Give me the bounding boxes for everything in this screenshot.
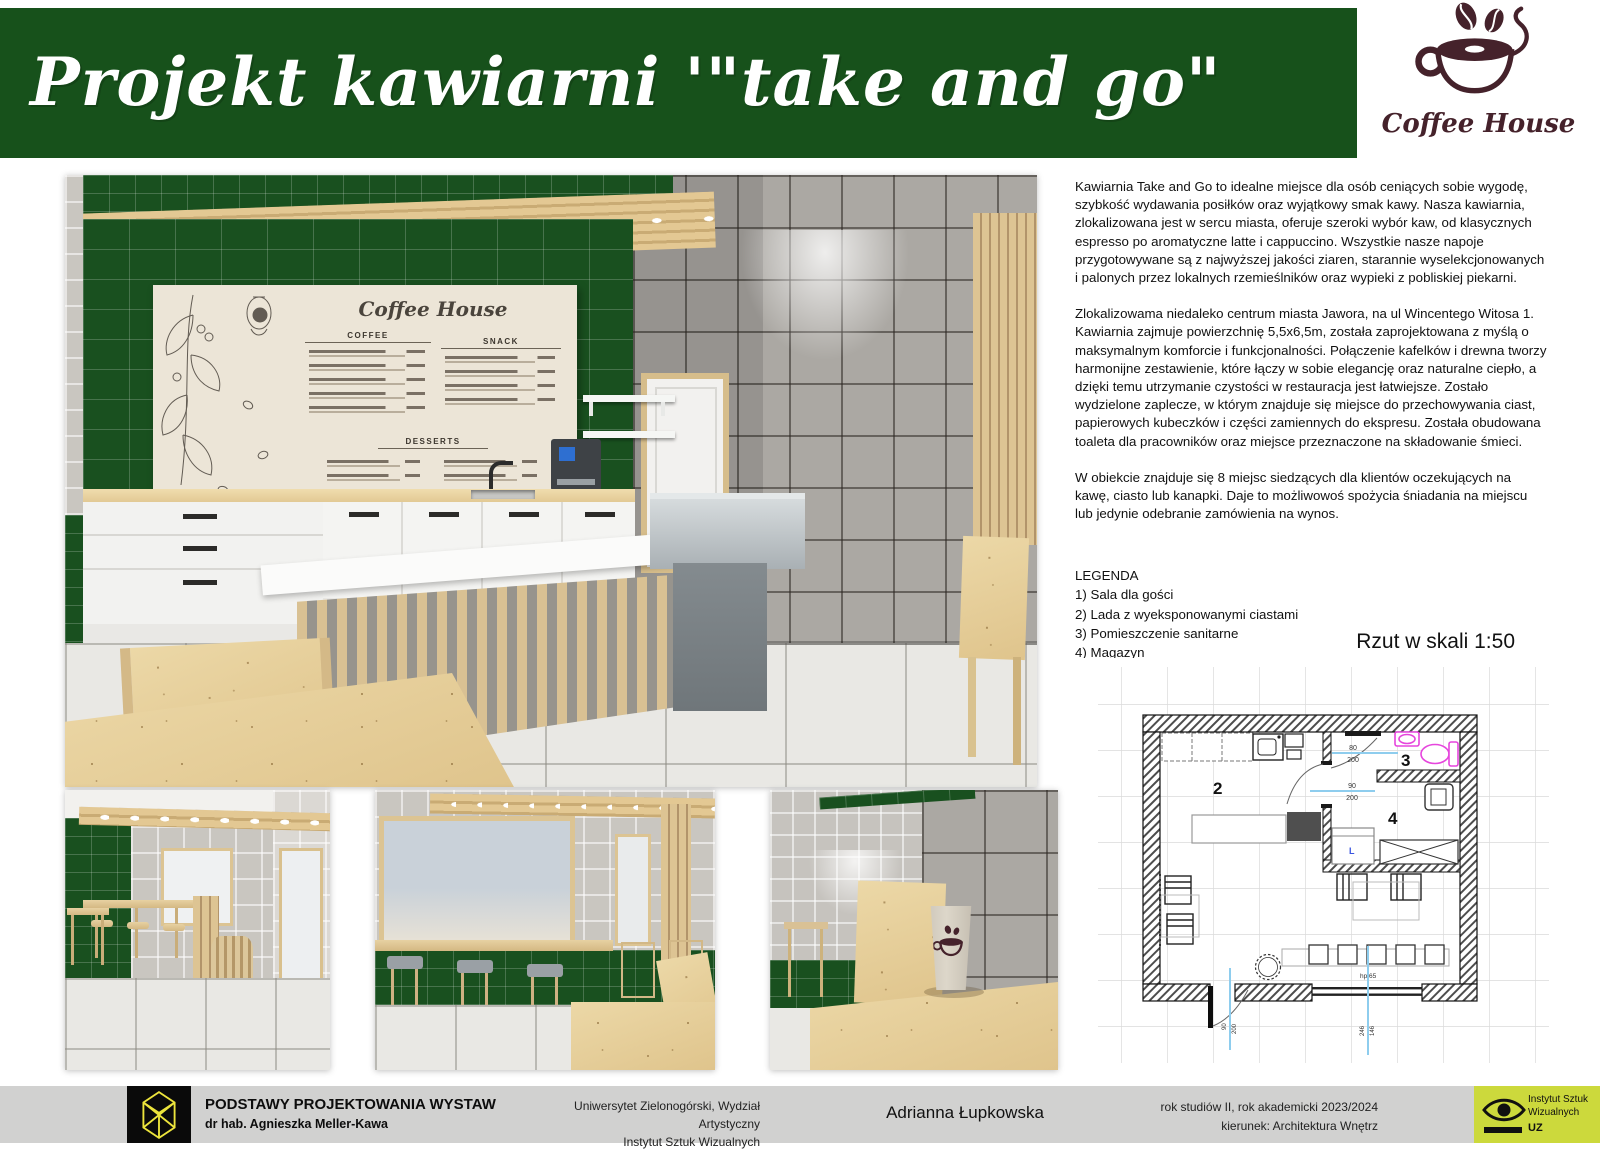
door-handle (429, 512, 459, 517)
menu-title: Coffee House (303, 297, 563, 321)
coffee-house-logo: Coffee House (1357, 0, 1600, 165)
display-case-top (650, 493, 805, 569)
institute-badge: Instytut Sztuk Wizualnych UZ (1474, 1086, 1600, 1143)
svg-text:246: 246 (1360, 1025, 1366, 1036)
drawer-handle (183, 514, 217, 519)
lecturer-name: dr hab. Agnieszka Meller-Kawa (205, 1117, 388, 1131)
main-render: Coffee House COFFEE SNACK DESSERTS (65, 175, 1037, 787)
legend-item: 1) Sala dla gości (1075, 585, 1495, 604)
chair-leg (968, 657, 976, 757)
sink-basin (471, 490, 535, 499)
floor (65, 978, 330, 1070)
coffee-machine (551, 439, 601, 491)
cube-wireframe-icon (138, 1089, 180, 1141)
chair-back (959, 536, 1029, 660)
legend-title: LEGENDA (1075, 566, 1495, 585)
cup-logo-print (928, 922, 974, 968)
espresso-machine-plan (1287, 812, 1321, 841)
floor-plan-drawing: L hp 65 80 200 90 200 90 200 (1075, 658, 1555, 1065)
description-block: Kawiarnia Take and Go to idealne miejsce… (1075, 178, 1547, 541)
coffee-cup-icon (1399, 0, 1559, 108)
chair-leg (1013, 657, 1021, 765)
room-label-3: 3 (1401, 751, 1410, 770)
door-handle (585, 512, 615, 517)
eye-icon (1482, 1095, 1526, 1125)
fridge-box: L (1332, 828, 1374, 864)
paragraph-location: Zlokalizowama niedaleko centrum miasta J… (1075, 305, 1547, 451)
svg-text:146: 146 (1370, 1025, 1376, 1036)
door-handle (509, 512, 539, 517)
shelf-bracket (661, 402, 665, 416)
coffee-house-logo-text: Coffee House (1357, 109, 1600, 139)
chair-outline (621, 942, 655, 998)
svg-text:200: 200 (1232, 1023, 1238, 1034)
footer-bar: PODSTAWY PROJEKTOWANIA WYSTAW dr hab. Ag… (0, 1086, 1600, 1143)
service-table (1192, 815, 1286, 843)
stool-cushion (387, 956, 423, 969)
drawer-handle (183, 580, 217, 585)
table (571, 1002, 715, 1070)
wall-shelf-lower (583, 431, 675, 438)
back-counter-top (83, 489, 635, 502)
legend-item: 2) Lada z wyeksponowanymi ciastami (1075, 605, 1495, 624)
machine-screen (559, 447, 575, 461)
small-render-window-bar (375, 790, 715, 1070)
stool-cushion (457, 960, 493, 973)
machine-tray (557, 479, 595, 485)
floor-plan: L hp 65 80 200 90 200 90 200 (1075, 658, 1555, 1065)
left-wall-sliver (65, 175, 83, 515)
menu-board: Coffee House COFFEE SNACK DESSERTS (153, 285, 577, 505)
stool (127, 922, 149, 929)
side-table (67, 908, 109, 915)
svg-text:200: 200 (1346, 795, 1358, 802)
stool (163, 924, 185, 931)
study-year-lines: rok studiów II, rok akademicki 2023/2024… (1150, 1098, 1378, 1135)
small-render-table-cup (770, 790, 1058, 1070)
shelf-bracket (589, 402, 593, 416)
storage-crate (1380, 840, 1458, 864)
room-label-4: 4 (1388, 809, 1398, 828)
spotlight-glow (725, 230, 925, 510)
menu-col-coffee: COFFEE (305, 331, 431, 417)
course-title: PODSTAWY PROJEKTOWANIA WYSTAW (205, 1096, 496, 1113)
menu-col-snack: SNACK (441, 337, 561, 409)
svg-text:90: 90 (1222, 1023, 1228, 1030)
coffee-plant-sketch (153, 285, 303, 505)
course-logo-box (127, 1086, 191, 1143)
window-bar (375, 940, 613, 951)
badge-underline (1484, 1127, 1522, 1133)
author-name: Adrianna Łupkowska (845, 1103, 1085, 1123)
poster-title: Projekt kawiarni '"take and go" (0, 8, 1357, 156)
wall-shelf-upper (583, 395, 675, 402)
svg-text:L: L (1349, 846, 1355, 856)
small-chair (784, 922, 828, 929)
paragraph-seats: W obiekcie znajduje się 8 miejsc siedząc… (1075, 469, 1547, 524)
mirror (615, 834, 651, 946)
plan-title: Rzut w skali 1:50 (1075, 630, 1515, 654)
planter (1256, 955, 1281, 980)
small-render-seating (65, 790, 330, 1070)
display-case-front (673, 563, 767, 711)
room-label-2: 2 (1213, 779, 1222, 798)
paragraph-intro: Kawiarnia Take and Go to idealne miejsce… (1075, 178, 1547, 287)
stool-cushion (527, 964, 563, 977)
back-counter (1162, 733, 1303, 761)
svg-text:90: 90 (1348, 783, 1356, 790)
door-handle (349, 512, 379, 517)
svg-text:80: 80 (1349, 745, 1357, 752)
svg-text:200: 200 (1347, 757, 1359, 764)
large-window (379, 816, 575, 948)
drawer-handle (183, 546, 217, 551)
wood-slat-screen (973, 213, 1037, 545)
title-banner: Projekt kawiarni '"take and go" (0, 8, 1357, 158)
badge-text: Instytut Sztuk Wizualnych UZ (1528, 1093, 1588, 1135)
